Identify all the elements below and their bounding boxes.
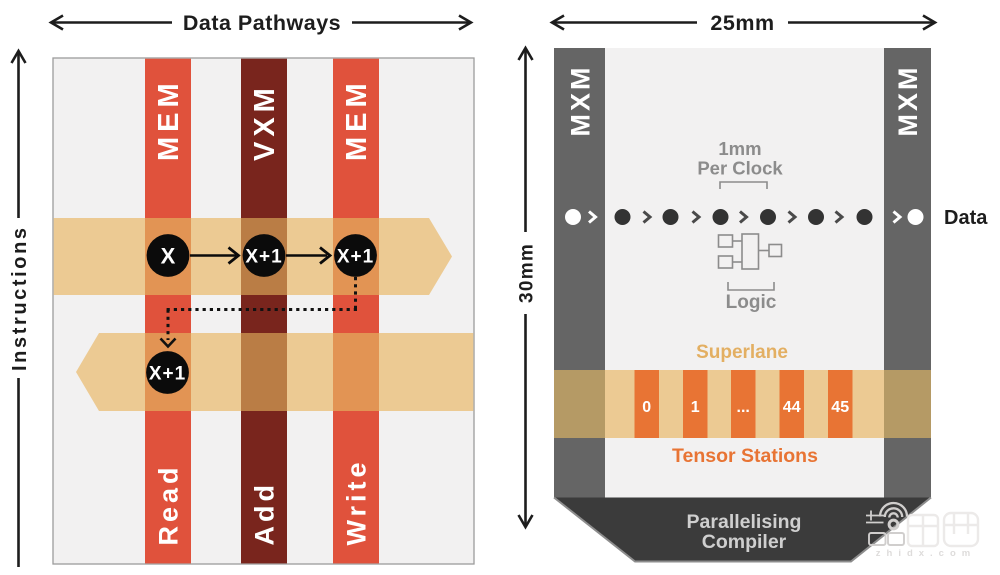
svg-text:Instructions: Instructions [9,225,31,371]
svg-text:X+1: X+1 [245,247,282,268]
svg-text:MXM: MXM [893,65,923,137]
svg-text:X+1: X+1 [149,364,186,385]
svg-text:MXM: MXM [566,65,596,137]
svg-text:X+1: X+1 [337,247,374,268]
svg-text:X: X [161,244,176,269]
svg-text:30mm: 30mm [517,243,538,303]
svg-text:MEM: MEM [341,78,373,161]
svg-text:Superlane: Superlane [696,342,788,363]
svg-text:Per Clock: Per Clock [697,158,783,179]
svg-text:0: 0 [642,399,651,416]
svg-text:44: 44 [783,399,801,416]
svg-text:Compiler: Compiler [702,531,787,553]
svg-text:VXM: VXM [249,83,281,161]
svg-text:zhidx.com: zhidx.com [876,548,976,559]
svg-text:25mm: 25mm [710,11,774,35]
svg-text:Add: Add [250,481,280,545]
svg-text:Read: Read [154,463,184,545]
svg-text:Tensor Stations: Tensor Stations [672,445,818,467]
svg-text:1mm: 1mm [718,138,761,159]
svg-text:Logic: Logic [726,292,777,313]
svg-text:Data: Data [944,207,988,229]
svg-text:MEM: MEM [153,78,185,161]
svg-text:Write: Write [342,458,372,545]
svg-text:1: 1 [691,399,700,416]
svg-text:...: ... [737,399,750,416]
svg-text:Data Pathways: Data Pathways [183,11,341,35]
svg-text:Parallelising: Parallelising [687,511,802,533]
svg-text:45: 45 [831,399,849,416]
